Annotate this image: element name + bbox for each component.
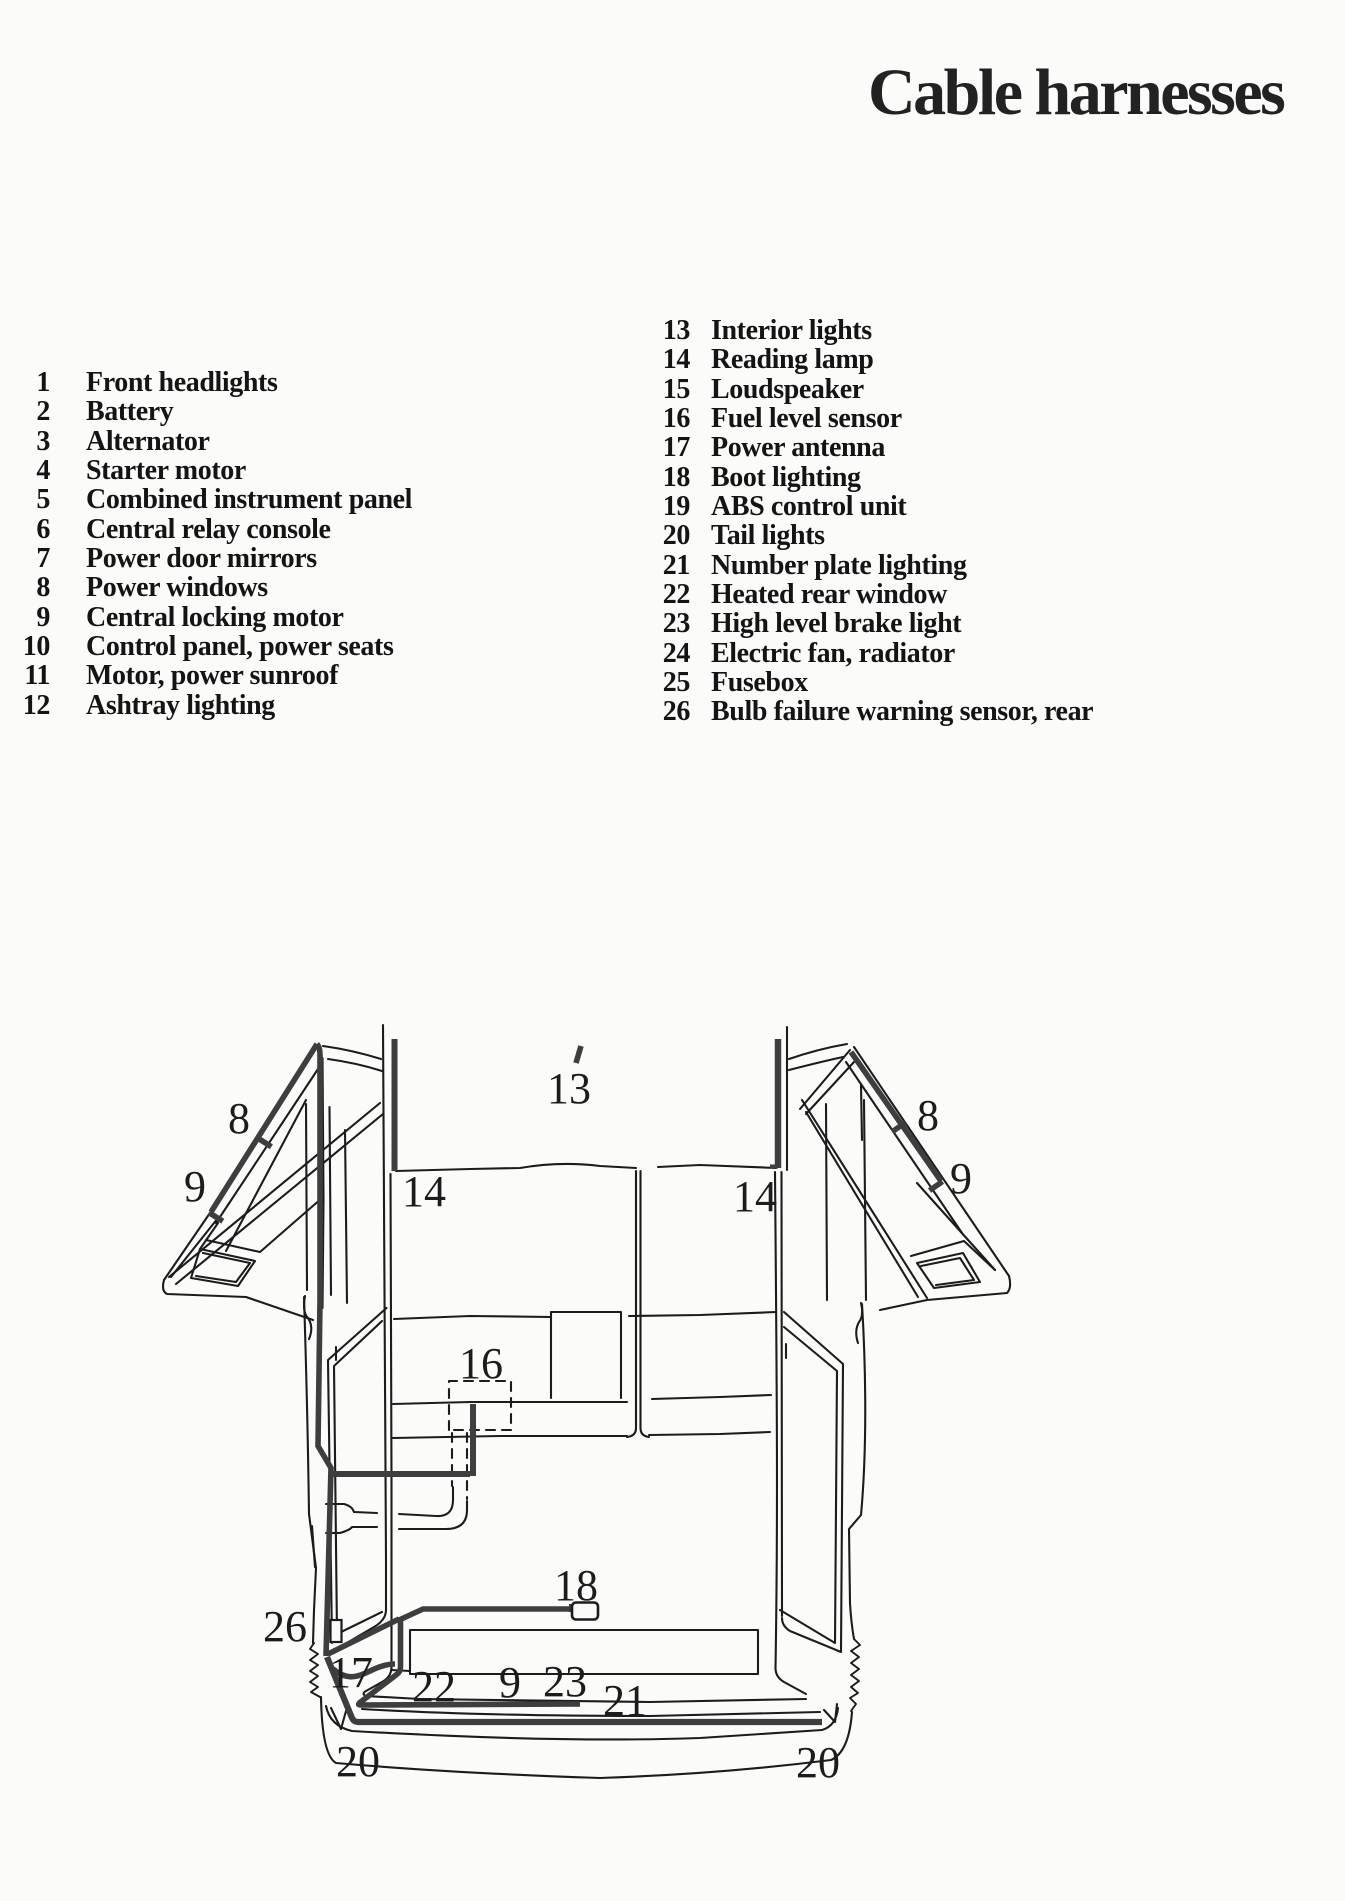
svg-text:14: 14 — [402, 1167, 446, 1216]
svg-text:14: 14 — [733, 1172, 777, 1221]
svg-text:22: 22 — [412, 1662, 456, 1711]
svg-text:23: 23 — [543, 1657, 587, 1706]
svg-text:17: 17 — [329, 1648, 373, 1697]
svg-text:26: 26 — [263, 1602, 307, 1651]
svg-text:8: 8 — [917, 1091, 939, 1140]
svg-text:9: 9 — [499, 1658, 521, 1707]
svg-text:13: 13 — [547, 1064, 591, 1113]
svg-text:18: 18 — [554, 1561, 598, 1610]
svg-text:8: 8 — [228, 1094, 250, 1143]
svg-text:9: 9 — [950, 1154, 972, 1203]
svg-text:16: 16 — [459, 1339, 503, 1388]
svg-text:9: 9 — [184, 1162, 206, 1211]
svg-text:20: 20 — [336, 1737, 380, 1786]
svg-text:21: 21 — [603, 1676, 647, 1725]
svg-text:20: 20 — [796, 1738, 840, 1787]
